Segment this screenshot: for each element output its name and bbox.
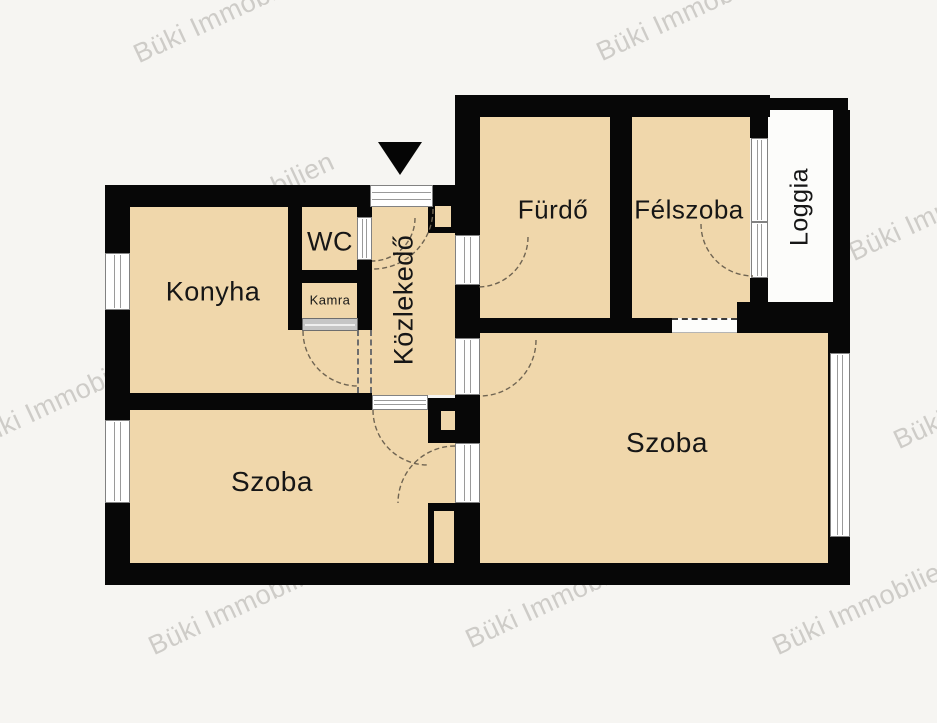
wall (288, 270, 362, 283)
opening-konyha-kozlekedo (357, 330, 372, 393)
door-entrance (370, 185, 433, 207)
watermark-text: Büki Immobilien (129, 0, 322, 70)
wall (455, 318, 672, 333)
label-furdo: Fürdő (518, 195, 588, 226)
wall (455, 395, 480, 443)
opening-felszoba-szoba (672, 318, 737, 333)
label-szoba-right: Szoba (626, 427, 708, 459)
window-konyha (105, 253, 130, 310)
watermark-text: Büki Immobilien (889, 344, 937, 456)
label-wc: WC (307, 227, 353, 258)
niche-opening (434, 511, 454, 563)
wall (455, 95, 770, 117)
door-wc (357, 217, 372, 260)
door-furdo (455, 235, 480, 285)
wall (105, 563, 850, 585)
label-kamra: Kamra (310, 293, 351, 308)
entrance-arrow-icon (378, 142, 422, 175)
floor-plan: Büki Immobilien Büki Immobilien Büki Imm… (0, 0, 937, 723)
wall (750, 278, 768, 304)
wall (105, 185, 130, 580)
door-szoba-right (455, 338, 480, 395)
label-kozlekedo: Közlekedő (389, 235, 420, 366)
window-szoba-right (830, 353, 850, 537)
watermark-text: Büki Immobilien (592, 0, 785, 68)
label-szoba-left: Szoba (231, 466, 313, 498)
room-konyha-extension (288, 330, 357, 393)
wall-loggia-right (833, 110, 850, 315)
door-szoba-left (372, 395, 428, 410)
shaft-opening (435, 206, 451, 227)
label-loggia: Loggia (786, 168, 815, 246)
wall (288, 207, 302, 330)
wall (610, 117, 632, 333)
watermark-text: Büki Immobilien (844, 156, 937, 268)
label-felszoba: Félszoba (634, 195, 744, 226)
wall-loggia-top (757, 98, 848, 110)
window-szoba-left (105, 420, 130, 503)
door-kamra (302, 318, 358, 331)
wall (105, 185, 370, 207)
door-loggia (751, 222, 768, 278)
window-loggia (751, 138, 768, 222)
label-konyha: Konyha (166, 277, 261, 308)
door-between-szoba (455, 443, 480, 503)
wall (750, 117, 768, 138)
wall (455, 117, 480, 235)
wall (105, 393, 372, 410)
